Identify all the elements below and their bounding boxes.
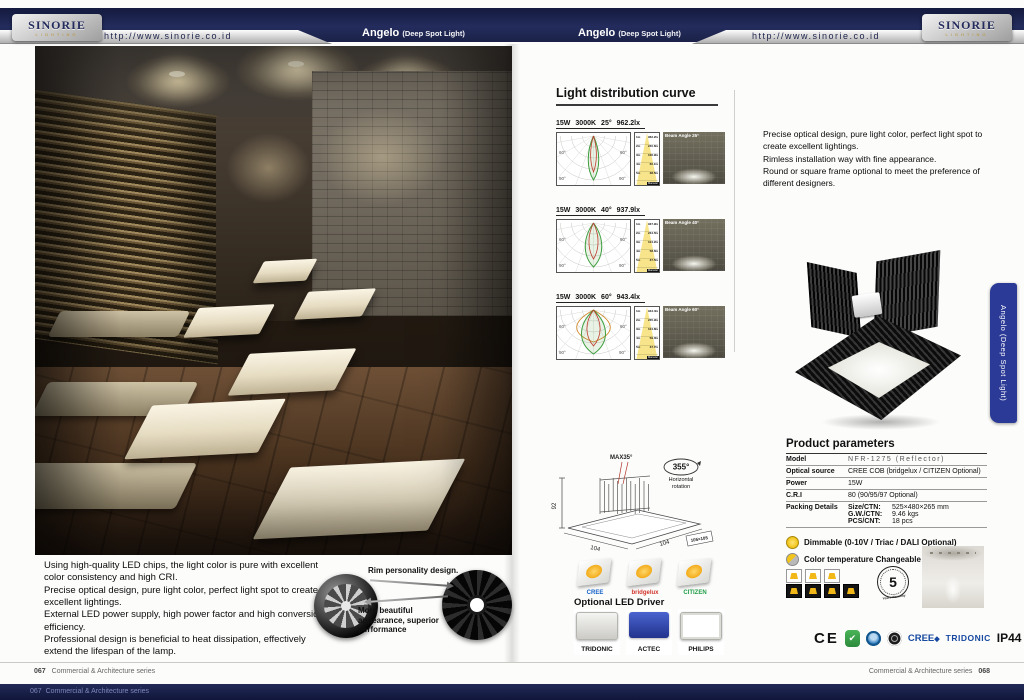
warranty-badge: 5 Years Warranty [877,566,909,598]
tridonic-logo: TRIDONIC [946,633,991,643]
polar-curve-diagram: 60°60°90°90° [557,133,630,185]
brand-name: SINORIE [28,18,86,33]
ldc-row: 15W3000K40°937.9lx60°60°90°90°1m937.9lx2… [556,199,732,273]
polar-box: 60°60°90°90° [556,219,631,273]
photo-vignette [35,46,512,555]
polar-curve-diagram: 60°60°90°90° [557,220,630,272]
feature-line: Precise optical design, pure light color… [44,585,324,610]
svg-text:60°: 60° [620,150,627,155]
cob-chip-options: CREE bridgelux CITIZEN [574,558,716,596]
ldc-row: 15W3000K25°962.2lx60°60°90°90°1m962.2lx2… [556,112,732,186]
footer-rule [0,662,1024,663]
footer-right: Commercial & Architecture series 068 [869,668,994,675]
footer-band [0,684,1024,700]
ldc-angle: 40° [601,207,612,214]
cob-chip: CREE [574,558,616,596]
ldc-row-header: 15W3000K40°937.9lx [556,207,645,216]
cct-option-icon [824,584,840,598]
packing-line: G.W./CTN:9.46 kgs [848,511,949,518]
parameter-row: ModelNFR-1275 (Reflector) [786,454,987,466]
lamp-glyph [790,588,798,594]
parameter-row: Power15W [786,478,987,490]
chip-brand-label: bridgelux [624,590,666,596]
dimension-drawing: MAX35° 355° Horizontal rotation 92 104 1… [548,450,716,556]
warranty-ring [880,569,906,595]
brand-subtitle: LIGHTING [36,32,79,37]
ldc-power: 15W [556,207,570,214]
reflector-part [852,292,883,318]
feature-line: Professional design is beneficial to hea… [44,634,324,659]
driver-photo [576,612,618,640]
led-driver: ACTEC [626,609,672,655]
ldc-row-header: 15W3000K25°962.2lx [556,120,645,129]
product-photo [795,256,963,446]
ldc-angle: 25° [601,120,612,127]
parameter-label: C.R.I [786,492,848,499]
chip-led-area [585,564,603,579]
lamp-glyph [828,588,836,594]
brand-logo-right: SINORIE LIGHTING [922,14,1012,41]
led-driver: TRIDONIC [574,609,620,655]
description-line: Rimless installation way with fine appea… [763,153,991,165]
lamp-glyph [847,588,855,594]
footer-band-text: 067 Commercial & Architecture series [30,688,149,695]
parameter-value: 80 (90/95/97 Optional) [848,492,918,499]
beam-photo: Beam Angle 40° [663,219,725,271]
diameter-tag: Diameter [647,356,659,359]
feature-paragraphs: Using high-quality LED chips, the light … [44,560,324,659]
section-side-tab: Angelo (Deep Spot Light) [990,283,1017,423]
chip-led-area [635,564,653,579]
column-divider [734,90,735,352]
svg-text:90°: 90° [559,263,566,268]
page-gutter [504,44,520,662]
svg-text:MAX35°: MAX35° [610,455,633,461]
parameter-row: C.R.I80 (90/95/97 Optional) [786,490,987,502]
cone-row: 5m37.7lx [636,345,658,355]
feature-line: Using high-quality LED chips, the light … [44,560,324,585]
polar-curve-diagram: 60°60°90°90° [557,307,630,359]
cct-options-row-top [786,569,840,583]
cct-option-icon [824,569,840,583]
lamp-glyph [790,573,798,579]
description-line: Precise optical design, pure light color… [763,128,991,153]
svg-text:90°: 90° [559,350,566,355]
beam-photo-label: Beam Angle 40° [665,220,699,225]
ldc-power: 15W [556,120,570,127]
series-name: Commercial & Architecture series [52,668,155,675]
rim-design-figure: Rim personality design. More beautiful a… [312,560,514,656]
side-tab-label: Angelo (Deep Spot Light) [999,305,1008,401]
rohs-icon: ✔ [845,630,860,647]
parameter-value: 15W [848,480,862,487]
svg-text:104: 104 [590,545,602,553]
cct-option-icon [786,584,802,598]
cct-changeable-row: Color temperature Changeable [786,553,921,566]
cob-chip: bridgelux [624,558,666,596]
catalog-spread: SINORIE LIGHTING SINORIE LIGHTING http:/… [0,0,1024,700]
svg-text:60°: 60° [559,324,566,329]
svg-text:60°: 60° [620,237,627,242]
chip-photo [627,558,662,586]
description-line: Round or square frame optional to meet t… [763,165,991,190]
ldc-cct: 3000K [575,120,596,127]
product-title-left: Angelo (Deep Spot Light) [362,27,465,39]
polar-box: 60°60°90°90° [556,306,631,360]
product-suffix: (Deep Spot Light) [402,29,465,38]
cree-logo: CREE◆ [908,633,940,644]
cone-diagram: 1m937.9lx2m234.5lx3m104.2lx4m58.6lx5m37.… [634,219,660,273]
svg-text:90°: 90° [619,263,626,268]
certification-icon [866,631,881,646]
cone-row: 5m37.5lx [636,258,658,268]
parameter-label: Model [786,456,848,463]
product-name: Angelo [578,27,615,39]
ce-mark: CE [814,630,839,647]
series-name: Commercial & Architecture series [869,668,972,675]
brand-logo-left: SINORIE LIGHTING [12,14,102,41]
parameter-label: Power [786,480,848,487]
lamp-glyph [809,588,817,594]
svg-text:104: 104 [659,539,671,548]
certification-icon [887,631,902,646]
arrow-right-icon [370,579,448,586]
polar-box: 60°60°90°90° [556,132,631,186]
cct-options-row-bottom [786,584,859,598]
product-parameters: Product parameters ModelNFR-1275 (Reflec… [786,438,987,528]
parameter-value: NFR-1275 (Reflector) [848,456,945,463]
parameter-row: Packing DetailsSize/CTN:525×480×265 mmG.… [786,502,987,528]
page-number-right: 068 [978,668,990,675]
driver-brand-label: PHILIPS [678,646,724,653]
svg-text:60°: 60° [559,237,566,242]
ldc-lux: 943.4lx [617,294,640,301]
page-number-left: 067 [34,668,46,675]
lamp-rim-hub [470,598,484,612]
ldc-title-rule [556,104,718,106]
ldc-rows: 15W3000K25°962.2lx60°60°90°90°1m962.2lx2… [556,112,732,373]
beam-photo: Beam Angle 25° [663,132,725,184]
svg-text:rotation: rotation [672,484,690,490]
brand-name: SINORIE [938,18,996,33]
driver-section-title: Optional LED Driver [574,597,664,608]
website-url-right: http://www.sinorie.co.id [752,31,880,41]
arrow-left-icon [370,595,448,602]
diameter-tag: Diameter [647,182,659,185]
svg-text:90°: 90° [619,350,626,355]
restaurant-photo [35,46,512,555]
rim-caption-top: Rim personality design. [368,566,458,575]
footer-left: 067 Commercial & Architecture series [30,668,155,675]
chip-photo [677,558,712,586]
svg-text:60°: 60° [559,150,566,155]
product-description: Precise optical design, pure light color… [763,128,991,190]
rim-caption-bottom: More beautiful appearance, superior perf… [358,606,454,635]
driver-brand-label: ACTEC [626,646,672,653]
svg-text:60°: 60° [620,324,627,329]
brand-subtitle: LIGHTING [946,32,989,37]
cct-option-icon [805,569,821,583]
cct-changeable-label: Color temperature Changeable [804,555,921,564]
product-title-right: Angelo (Deep Spot Light) [578,27,681,39]
ldc-lux: 937.9lx [617,207,640,214]
beam-photo-label: Beam Angle 25° [665,133,699,138]
parameter-row: Optical sourceCREE COB (bridgelux / CITI… [786,466,987,478]
ip-rating: IP44 [997,631,1022,645]
chip-led-area [685,564,703,579]
chip-brand-label: CITIZEN [674,590,716,596]
ldc-angle: 60° [601,294,612,301]
parameter-label: Optical source [786,468,848,475]
parameters-table: ModelNFR-1275 (Reflector)Optical sourceC… [786,454,987,528]
certification-row: CE ✔ CREE◆ TRIDONIC IP44 [814,627,1021,649]
ldc-row-header: 15W3000K60°943.4lx [556,294,645,303]
svg-text:90°: 90° [559,176,566,181]
chip-photo [577,558,612,586]
product-name: Angelo [362,27,399,39]
feature-line: External LED power supply, high power fa… [44,609,324,634]
packing-line: Size/CTN:525×480×265 mm [848,504,949,511]
cone-row: 5m38.5lx [636,171,658,181]
driver-photo [629,612,669,638]
svg-text:90°: 90° [619,176,626,181]
driver-photo [680,612,722,640]
ldc-cct: 3000K [575,207,596,214]
ldc-lux: 962.2lx [617,120,640,127]
led-driver: PHILIPS [678,609,724,655]
driver-brand-label: TRIDONIC [574,646,620,653]
dimension-diagram: MAX35° 355° Horizontal rotation 92 104 1… [548,450,716,556]
svg-text:Horizontal: Horizontal [669,477,694,483]
beam-photo-label: Beam Angle 60° [665,307,699,312]
product-suffix: (Deep Spot Light) [618,29,681,38]
website-url-left: http://www.sinorie.co.id [104,31,232,41]
svg-text:355°: 355° [673,463,690,472]
wheel-hub [341,601,351,611]
parameter-value: CREE COB (bridgelux / CITIZEN Optional) [848,468,981,475]
dimmable-icon [786,536,799,549]
cct-changeable-icon [786,553,799,566]
ldc-section-title: Light distribution curve [556,86,696,100]
cct-option-icon [843,584,859,598]
lamp-glyph [828,573,836,579]
application-photo [922,546,984,608]
cone-diagram: 1m962.2lx2m240.6lx3m106.9lx4m60.1lx5m38.… [634,132,660,186]
beam-photo: Beam Angle 60° [663,306,725,358]
svg-text:92: 92 [552,502,558,509]
ldc-cct: 3000K [575,294,596,301]
diameter-tag: Diameter [647,269,659,272]
cob-chip: CITIZEN [674,558,716,596]
ldc-power: 15W [556,294,570,301]
parameters-title: Product parameters [786,438,987,454]
led-driver-options: TRIDONIC ACTEC PHILIPS [574,609,724,655]
cone-diagram: 1m943.4lx2m235.9lx3m104.8lx4m59.0lx5m37.… [634,306,660,360]
cct-option-icon [805,584,821,598]
cct-option-icon [786,569,802,583]
packing-line: PCS/CNT:18 pcs [848,518,949,525]
lamp-glyph [809,573,817,579]
chip-brand-label: CREE [574,590,616,596]
parameter-label: Packing Details [786,504,848,525]
ldc-row: 15W3000K60°943.4lx60°60°90°90°1m943.4lx2… [556,286,732,360]
